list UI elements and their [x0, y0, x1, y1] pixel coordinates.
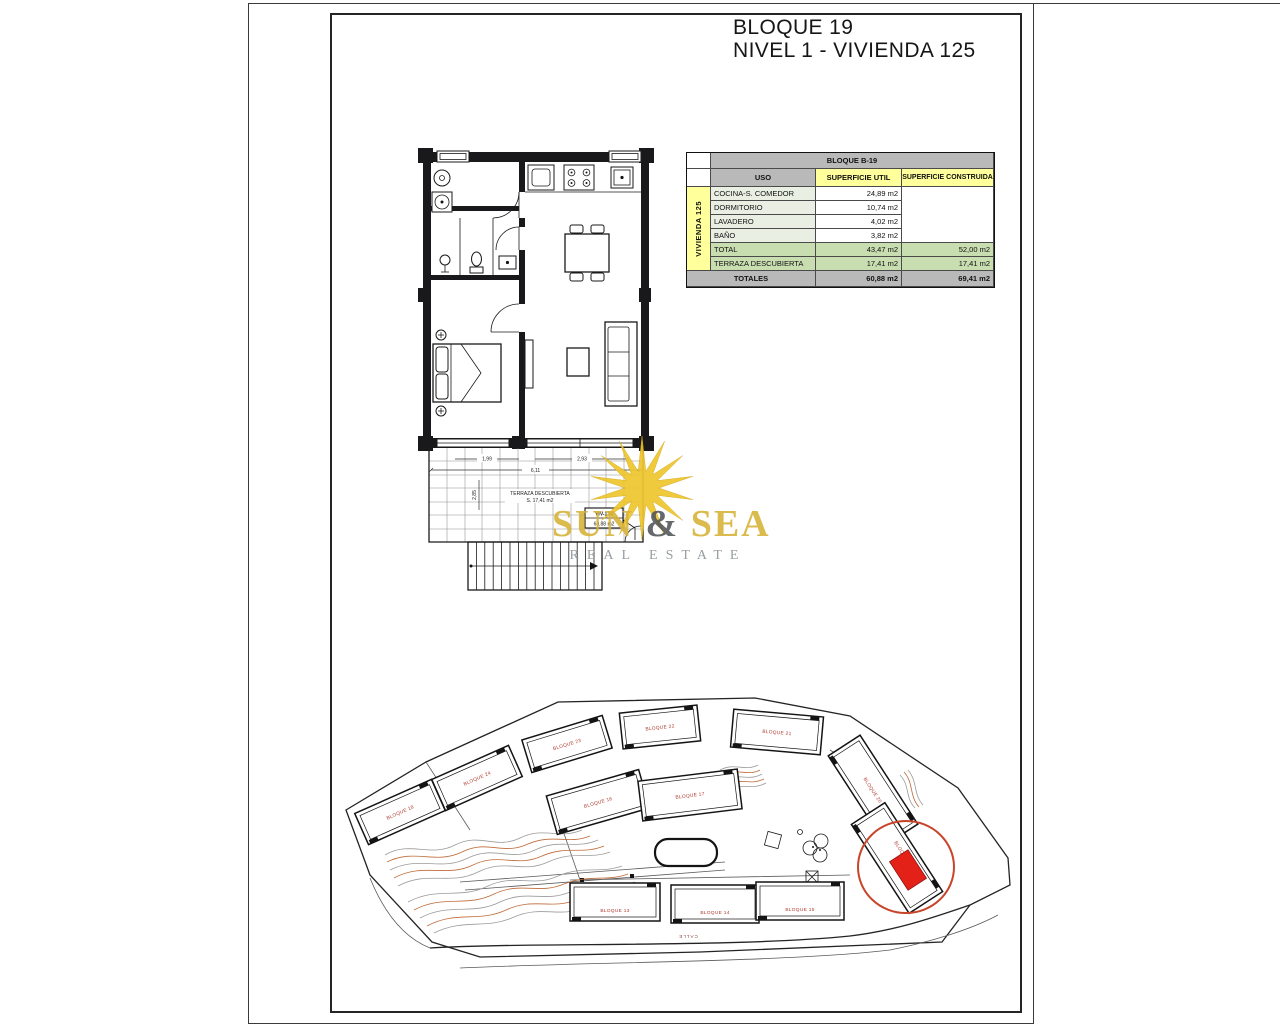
street-label: CALLE — [678, 934, 698, 939]
kitchen-counter — [525, 165, 641, 192]
sofa — [605, 322, 637, 406]
drawing-title: BLOQUE 19 NIVEL 1 - VIVIENDA 125 — [733, 16, 976, 62]
col-header-superficie-construida: SUPERFICIE CONSTRUIDA — [902, 169, 994, 187]
building-bloque-24: BLOQUE 24 — [432, 745, 523, 810]
row-dormitorio-util: 10,74 m2 — [816, 201, 902, 215]
building-bloque-17: BLOQUE 17 — [638, 769, 742, 821]
row-terraza-label: TERRAZA DESCUBIERTA — [711, 257, 816, 271]
unit-tag-box: VIV-125 60,88 m2 — [585, 508, 641, 542]
row-dormitorio-label: DORMITORIO — [711, 201, 816, 215]
building-bloque-23: BLOQUE 23 — [522, 715, 612, 772]
title-level-line: NIVEL 1 - VIVIENDA 125 — [733, 39, 976, 62]
table-corner-cell — [687, 153, 711, 169]
row-bano-util: 3,82 m2 — [816, 229, 902, 243]
row-group-vivienda-125: VIVIENDA 125 — [687, 187, 711, 271]
terrace-name: TERRAZA DESCUBIERTA — [510, 491, 570, 497]
row-lavadero-util: 4,02 m2 — [816, 215, 902, 229]
bed — [433, 344, 501, 402]
window-living — [527, 439, 633, 447]
window-top-right — [609, 151, 641, 162]
window-bedroom — [437, 439, 509, 447]
svg-text:BLOQUE 14: BLOQUE 14 — [700, 910, 729, 916]
construida-empty-cell — [902, 187, 994, 243]
row-cocina-label: COCINA-S. COMEDOR — [711, 187, 816, 201]
building-bloque-21: BLOQUE 21 — [731, 709, 824, 755]
title-block-line: BLOQUE 19 — [733, 16, 976, 39]
nightstand-lamps — [436, 330, 446, 416]
stove-icon — [564, 165, 594, 190]
stairs — [468, 542, 602, 590]
terrace-area: S. 17,41 m2 — [527, 498, 554, 504]
totales-util: 60,88 m2 — [816, 271, 902, 287]
dim-total-width: 6,11 — [531, 468, 541, 474]
table-corner-cell2 — [687, 169, 711, 187]
building-bloque-16: BLOQUE 16 — [546, 770, 649, 835]
site-plan-drawing: BLOQUE 18 BLOQUE 24 BLOQUE 23 BLOQUE 22 … — [330, 690, 1020, 990]
row-group-label: VIVIENDA 125 — [694, 201, 703, 257]
coffee-table — [567, 348, 589, 376]
unit-tag-area: 60,88 m2 — [594, 521, 615, 527]
unit-tag: VIV-125 — [595, 512, 613, 518]
building-bloque-22: BLOQUE 22 — [619, 705, 700, 749]
row-total-util: 43,47 m2 — [816, 243, 902, 257]
building-bloque-13: BLOQUE 13 — [570, 883, 660, 921]
svg-text:BLOQUE 13: BLOQUE 13 — [600, 908, 629, 914]
terrace-label: TERRAZA DESCUBIERTA S. 17,41 m2 — [505, 489, 575, 504]
pool-area — [655, 830, 828, 867]
row-lavadero-label: LAVADERO — [711, 215, 816, 229]
row-terraza-construida: 17,41 m2 — [902, 257, 994, 271]
col-header-uso: USO — [711, 169, 816, 187]
tv-unit — [525, 340, 533, 388]
col-header-superficie-util: SUPERFICIE UTIL — [816, 169, 902, 187]
totales-label: TOTALES — [687, 271, 816, 287]
area-table: BLOQUE B-19 USO SUPERFICIE UTIL SUPERFIC… — [686, 152, 995, 288]
building-bloque-14: BLOQUE 14 — [671, 885, 759, 923]
bathroom-fixtures — [440, 218, 516, 275]
building-bloque-15: BLOQUE 15 — [756, 882, 844, 920]
table-block-header: BLOQUE B-19 — [711, 153, 994, 169]
row-total-label: TOTAL — [711, 243, 816, 257]
row-bano-label: BAÑO — [711, 229, 816, 243]
building-bloque-18: BLOQUE 18 — [355, 779, 446, 844]
row-total-construida: 52,00 m2 — [902, 243, 994, 257]
window-top-left — [437, 151, 469, 162]
floor-plan-drawing: 6,11 1,99 2,93 2,85 TERRAZA DESCUBIERTA … — [415, 148, 660, 603]
laundry-appliances — [432, 170, 452, 212]
svg-text:BLOQUE 15: BLOQUE 15 — [785, 907, 814, 913]
dim-left-width: 1,99 — [482, 457, 492, 463]
dim-depth: 2,85 — [472, 490, 478, 500]
totales-construida: 69,41 m2 — [902, 271, 994, 287]
row-terraza-util: 17,41 m2 — [816, 257, 902, 271]
dim-right-width: 2,93 — [577, 457, 587, 463]
row-cocina-util: 24,89 m2 — [816, 187, 902, 201]
playground-icons — [764, 830, 828, 863]
dining-table — [565, 225, 609, 281]
